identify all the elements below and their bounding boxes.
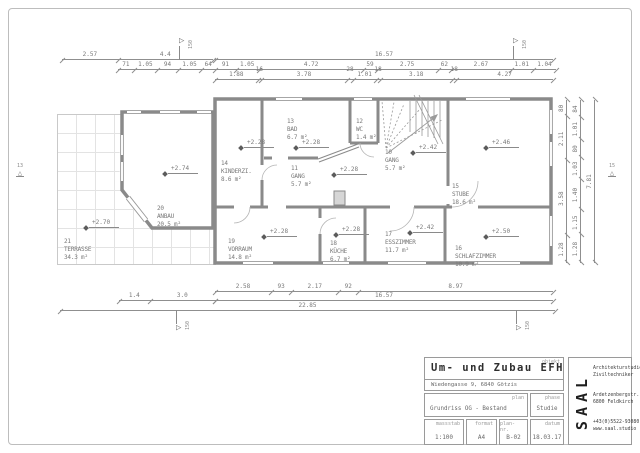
- saal-logo: SAAL: [573, 359, 591, 445]
- section-marker-top-right: ▷150: [513, 40, 531, 62]
- plannr-label: plan-nr.: [500, 421, 524, 433]
- level-marker-stube: +2.46: [484, 140, 519, 148]
- level-marker-vorraum: +2.28: [262, 229, 297, 237]
- firm-name: ArchitekturstudioZiviltechniker: [593, 365, 630, 379]
- level-marker-schlafzimmer: +2.50: [484, 229, 519, 237]
- titleblock-date-box: datum 18.03.17: [530, 419, 564, 445]
- section-pole: [179, 46, 180, 60]
- massstab-label: massstab: [436, 421, 460, 427]
- section-marker-bottom-right: ▷150: [516, 308, 534, 330]
- room-label-kueche: 18KÜCHE6.7 m²: [330, 240, 350, 263]
- room-label-kinderzimmer: 14KINDERZI.8.6 m²: [221, 160, 252, 183]
- date-value: 18.03.17: [531, 434, 563, 441]
- elevation-marker-left: 13△: [12, 164, 28, 177]
- room-label-terrasse: 21TERRASSE34.3 m²: [64, 238, 91, 261]
- phase-value: Studie: [531, 406, 563, 412]
- triangle-icon: △: [608, 170, 616, 177]
- project-title: Um- und Zubau EFH: [431, 362, 564, 374]
- titleblock-plan-box: plan Grundriss OG - Bestand: [424, 393, 528, 417]
- room-label-bad: 13BAD6.7 m²: [287, 118, 307, 141]
- room-label-wc: 12WC1.4 m²: [356, 118, 376, 141]
- firm-contact: +43(0)5522-93080www.saal.studio: [593, 419, 630, 433]
- room-label-schlafzimmer: 16SCHLAFZIMMER10.9 m²: [455, 245, 496, 268]
- section-marker-top-left: ▷150: [179, 40, 197, 62]
- scale-value: 1:100: [425, 434, 463, 441]
- level-marker-gang-11: +2.28: [332, 167, 367, 175]
- titleblock-plannr-box: plan-nr. B-02: [499, 419, 528, 445]
- level-marker-anbau: +2.74: [163, 166, 198, 174]
- section-pole: [513, 46, 514, 60]
- triangle-icon: △: [16, 170, 24, 177]
- titleblock-logo-box: SAAL ArchitekturstudioZiviltechniker Ard…: [568, 357, 632, 445]
- level-marker-bad: +2.28: [294, 140, 329, 148]
- room-label-anbau: 20ANBAU20.5 m²: [157, 205, 181, 228]
- plan-label: plan: [512, 395, 524, 401]
- level-marker-esszimmer: +2.42: [408, 225, 443, 233]
- level-marker-kinderzimmer: +2.28: [239, 140, 274, 148]
- phase-label: phase: [545, 395, 560, 401]
- title-block: objekt Um- und Zubau EFH Wiedengasse 9, …: [424, 357, 632, 445]
- titleblock-phase-box: phase Studie: [530, 393, 564, 417]
- level-marker-gang-10: +2.42: [411, 145, 446, 153]
- datum-label: datum: [545, 421, 560, 427]
- titleblock-object-box: objekt Um- und Zubau EFH Wiedengasse 9, …: [424, 357, 564, 391]
- firm-address: Ardetzenbergstr. 51-46800 Feldkirch: [593, 392, 630, 406]
- dim-chain-right-detail: 1.281.151.401.03801.0184: [570, 100, 581, 263]
- section-triangle-icon: ▷: [176, 324, 181, 333]
- level-marker-terrasse: +2.70: [84, 220, 119, 228]
- divider: [425, 379, 563, 380]
- dim-chain-bottom-overall: 22.85: [60, 300, 555, 311]
- format-value: A4: [467, 434, 496, 441]
- section-pole: [516, 310, 517, 324]
- titleblock-scale-box: massstab 1:100: [424, 419, 464, 445]
- dim-chain-right-overall: 7.81: [584, 100, 595, 263]
- drawing-sheet: 21TERRASSE34.3 m² 20ANBAU20.5 m² 14KINDE…: [0, 0, 640, 453]
- room-label-gang-10: 10GANG5.7 m²: [385, 149, 405, 172]
- section-marker-bottom-left: ▷150: [176, 308, 194, 330]
- room-label-stube: 15STUBE18.6 m²: [452, 183, 476, 206]
- section-triangle-icon: ▷: [513, 37, 518, 46]
- room-label-vorraum: 19VORRAUM14.8 m²: [228, 238, 252, 261]
- project-address: Wiedengasse 9, 6840 Götzis: [431, 382, 517, 388]
- section-pole: [176, 310, 177, 324]
- level-marker-kueche: +2.28: [334, 227, 369, 235]
- titleblock-format-box: format A4: [466, 419, 497, 445]
- shaft: [334, 191, 345, 205]
- section-triangle-icon: ▷: [516, 324, 521, 333]
- section-triangle-icon: ▷: [179, 37, 184, 46]
- format-label: format: [475, 421, 493, 427]
- elevation-marker-right: 15△: [604, 164, 620, 177]
- dim-chain-top-rooms: 1.88163.78281.01183.18184.27: [215, 69, 553, 80]
- plannr-value: B-02: [500, 434, 527, 441]
- plan-name: Grundriss OG - Bestand: [430, 406, 527, 412]
- dim-chain-right-inner: 1.283.582.1180: [556, 100, 567, 263]
- room-label-gang-11: 11GANG5.7 m²: [291, 165, 311, 188]
